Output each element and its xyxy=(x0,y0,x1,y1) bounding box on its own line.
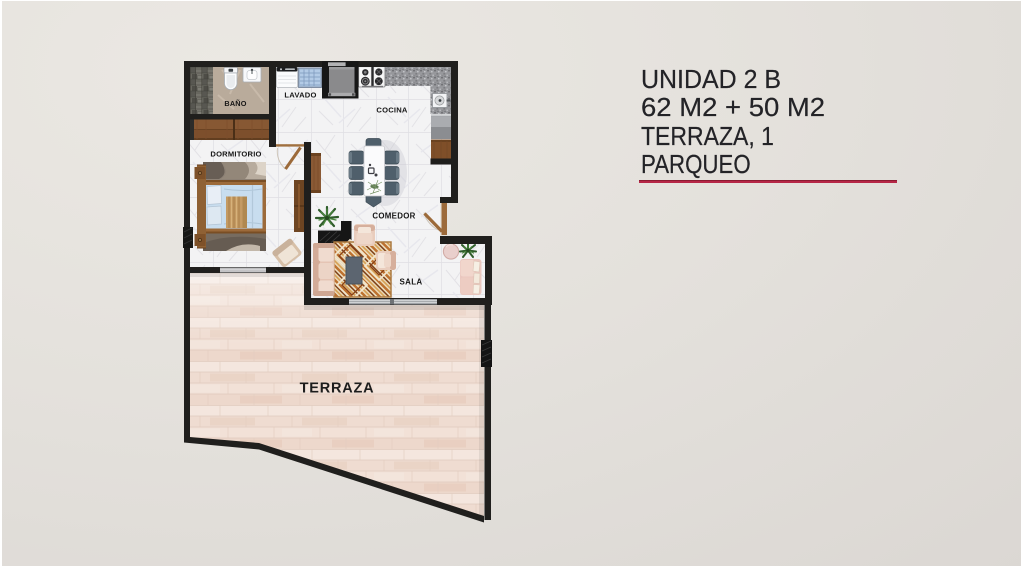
svg-text:LAVADO: LAVADO xyxy=(284,91,316,100)
svg-text:SALA: SALA xyxy=(400,278,423,287)
svg-text:BAÑO: BAÑO xyxy=(224,99,246,108)
svg-text:TERRAZA: TERRAZA xyxy=(300,381,375,397)
svg-text:COMEDOR: COMEDOR xyxy=(372,212,415,221)
svg-text:COCINA: COCINA xyxy=(376,106,407,115)
svg-text:DORMITORIO: DORMITORIO xyxy=(210,150,261,159)
